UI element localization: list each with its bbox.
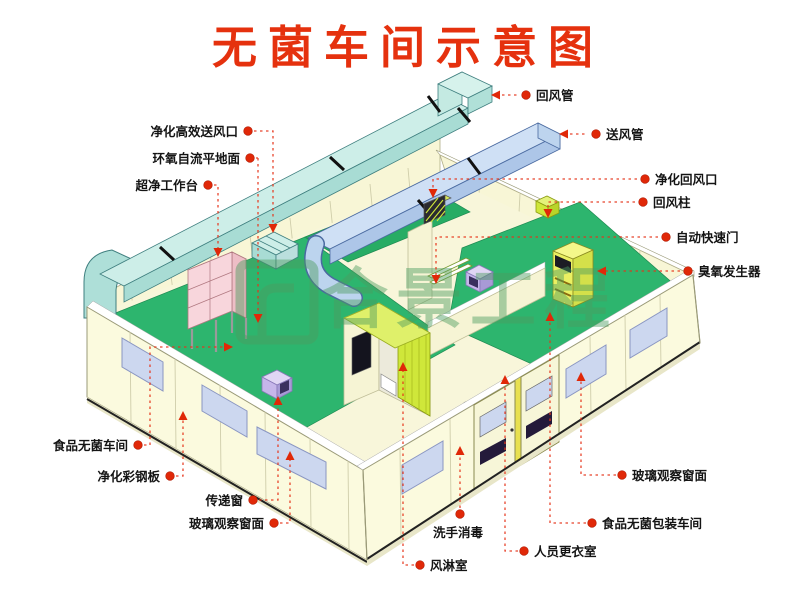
leader-dot — [520, 547, 529, 556]
label-transfer-window: 传递窗 — [204, 493, 243, 508]
door-knob — [510, 428, 513, 431]
leader-dot — [134, 441, 143, 450]
label-return-grille: 净化回风口 — [655, 172, 718, 187]
label-ozone-generator: 臭氧发生器 — [698, 264, 761, 279]
label-hepa-supply-outlet: 净化高效送风口 — [150, 124, 238, 139]
cleanroom-schematic-page: 无菌车间示意图 — [0, 0, 800, 607]
label-hand-wash: 洗手消毒 — [433, 525, 484, 540]
leader-dot — [522, 91, 531, 100]
label-return-column: 回风柱 — [653, 195, 691, 210]
label-auto-fast-door: 自动快速门 — [676, 230, 739, 245]
leader-dot — [416, 561, 425, 570]
leader-dot — [592, 130, 601, 139]
label-glass-window-left: 玻璃观察窗面 — [189, 516, 265, 531]
leader-dot — [662, 233, 671, 242]
leader-dot — [641, 175, 650, 184]
label-changing-room: 人员更衣室 — [534, 544, 597, 559]
leader-dot — [588, 519, 597, 528]
label-steel-panel: 净化彩钢板 — [97, 469, 160, 484]
leader-dot — [618, 471, 627, 480]
cleanroom-diagram: 无菌车间示意图 — [0, 0, 800, 607]
leader-dot — [639, 198, 648, 207]
watermark-text: 合景工程 — [322, 261, 618, 338]
label-food-sterile-room: 食品无菌车间 — [52, 438, 128, 453]
leader-dot — [456, 510, 465, 519]
leader-dot — [166, 472, 175, 481]
leader-dot — [204, 181, 213, 190]
leader-dot — [246, 154, 255, 163]
leader-dot — [270, 519, 279, 528]
label-packaging-room: 食品无菌包装车间 — [601, 516, 702, 531]
leader-dot — [244, 127, 253, 136]
label-glass-window-right: 玻璃观察窗面 — [632, 468, 708, 483]
door-center-strip — [515, 377, 521, 468]
leader-dot — [684, 267, 693, 276]
leader-dot — [249, 496, 258, 505]
page-title: 无菌车间示意图 — [212, 21, 604, 74]
label-epoxy-floor: 环氧自流平地面 — [152, 151, 240, 166]
label-return-duct: 回风管 — [536, 88, 574, 103]
label-supply-duct: 送风管 — [605, 127, 644, 142]
label-air-shower: 风淋室 — [430, 558, 468, 573]
label-clean-bench: 超净工作台 — [134, 178, 198, 193]
